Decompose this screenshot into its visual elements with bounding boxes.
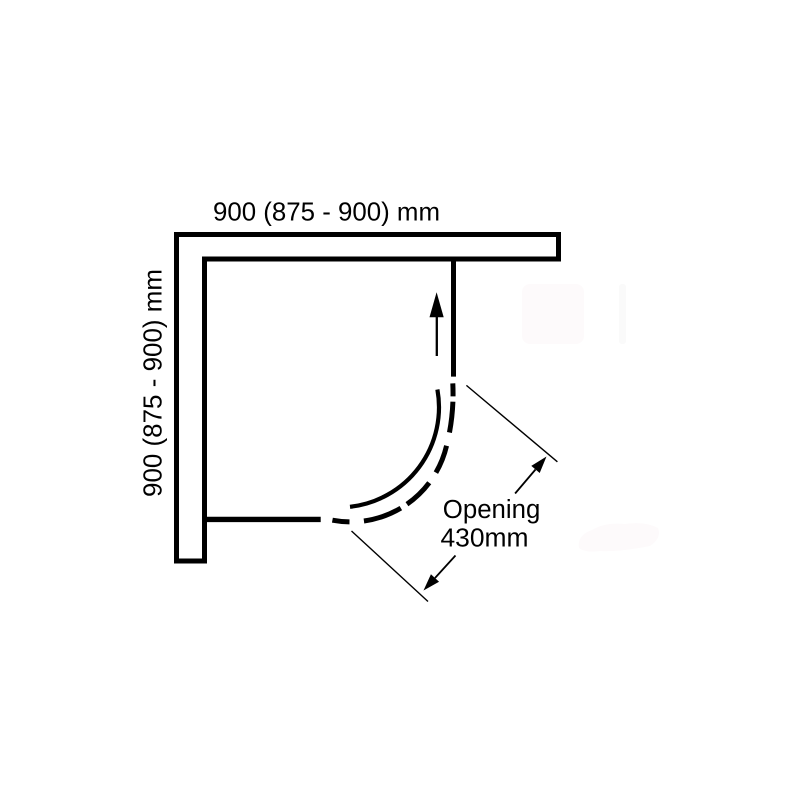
svg-text:900 (875 - 900) mm: 900 (875 - 900) mm [213,196,440,226]
svg-text:430mm: 430mm [441,525,529,553]
svg-text:Opening: Opening [443,496,541,524]
svg-text:900 (875 - 900) mm: 900 (875 - 900) mm [138,269,168,497]
